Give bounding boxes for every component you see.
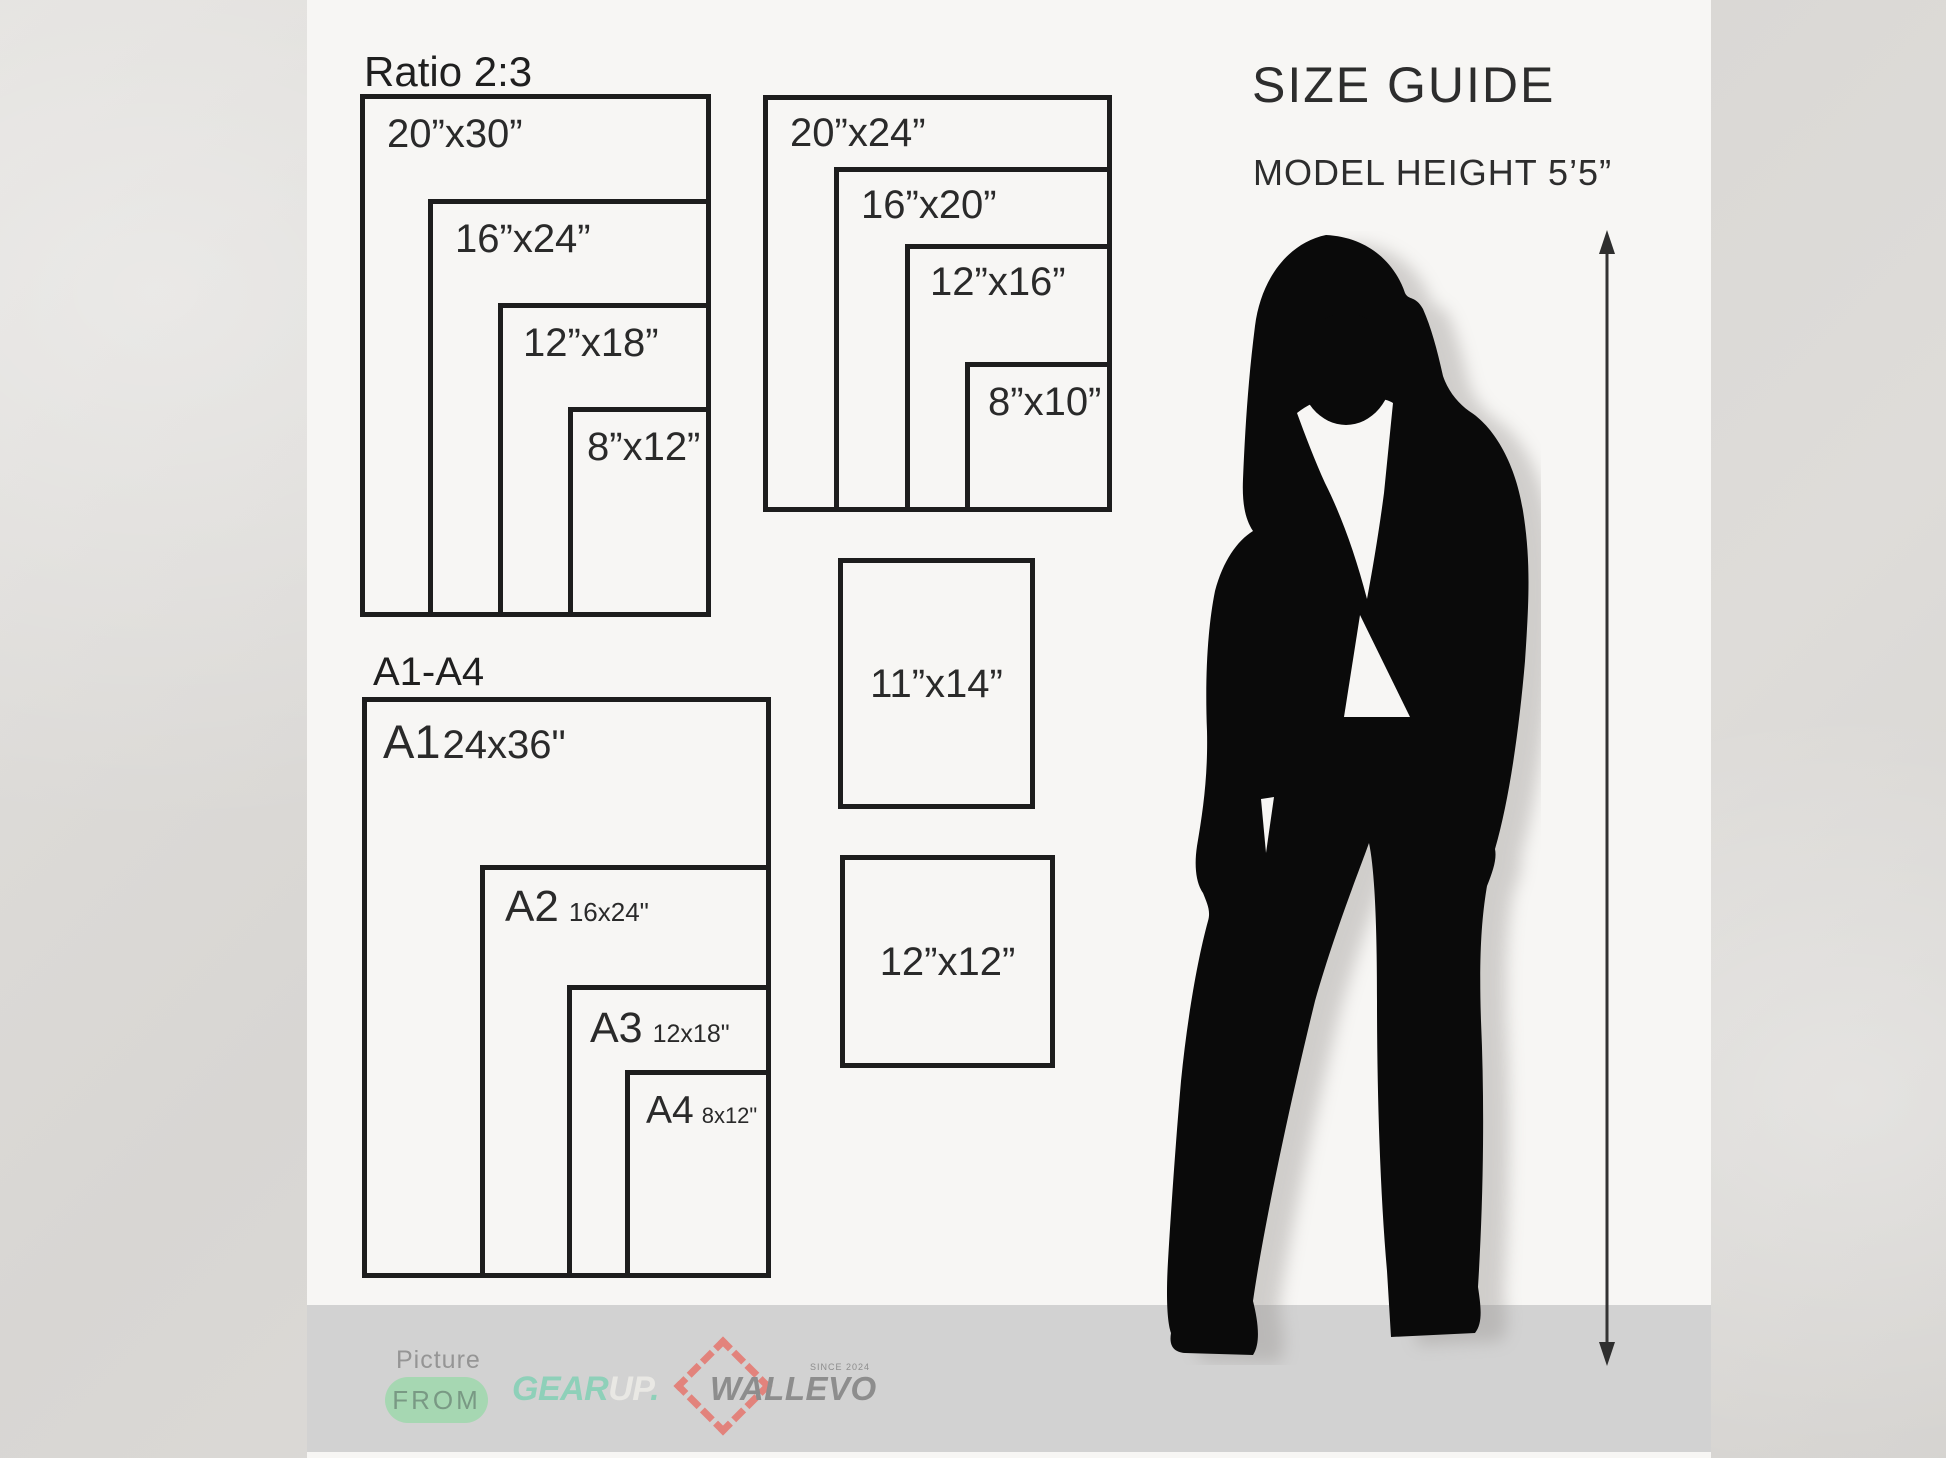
size-guide-infographic: Ratio 2:3 20”x30” 16”x24” 12”x18” 8”x12”… [0, 0, 1946, 1458]
size-label-12x16: 12”x16” [930, 261, 1066, 303]
size-box-11x14: 11”x14” [838, 558, 1035, 809]
a1-dim: 24x36" [443, 723, 566, 768]
size-label-16x20: 16”x20” [861, 184, 997, 226]
a3-label-row: A3 12x18" [590, 1004, 730, 1053]
a4-label-row: A4 8x12" [646, 1089, 757, 1133]
size-label-20x24: 20”x24” [790, 112, 926, 154]
gearup-logo-dot: . [650, 1370, 659, 1408]
ratio-2-3-group-label: Ratio 2:3 [364, 48, 532, 96]
gearup-logo: GEARUP. [512, 1370, 659, 1409]
size-label-8x10: 8”x10” [988, 381, 1101, 423]
size-label-12x18: 12”x18” [523, 322, 659, 364]
gearup-logo-up: UP [608, 1370, 650, 1408]
height-arrow-icon [1594, 230, 1620, 1366]
a3-name: A3 [590, 1004, 643, 1053]
size-label-16x24: 16”x24” [455, 218, 591, 260]
a1-label-row: A1 24x36" [383, 714, 566, 769]
size-box-12x12: 12”x12” [840, 855, 1055, 1068]
size-label-20x30: 20”x30” [387, 113, 523, 155]
wallevo-logo: WALLEVO [710, 1370, 877, 1408]
size-box-8x10: 8”x10” [965, 362, 1112, 512]
model-height-label: MODEL HEIGHT 5’5” [1253, 152, 1612, 194]
a4-name: A4 [646, 1089, 694, 1133]
a1-name: A1 [383, 714, 441, 769]
size-label-12x12: 12”x12” [880, 941, 1016, 983]
a2-name: A2 [505, 882, 559, 932]
picture-from-label: Picture [396, 1346, 481, 1375]
a2-label-row: A2 16x24" [505, 882, 649, 932]
model-silhouette-image [1163, 231, 1541, 1365]
size-box-8x12: 8”x12” [568, 407, 711, 617]
size-label-8x12: 8”x12” [587, 426, 700, 468]
from-badge: FROM [385, 1377, 488, 1423]
wallevo-since-label: SINCE 2024 [810, 1362, 870, 1372]
gearup-logo-gear: GEAR [512, 1370, 608, 1408]
page-title: SIZE GUIDE [1252, 56, 1555, 114]
size-label-11x14: 11”x14” [870, 663, 1003, 705]
from-badge-text: FROM [392, 1385, 481, 1416]
a4-dim: 8x12" [702, 1103, 758, 1129]
a-series-group-label: A1-A4 [373, 650, 484, 695]
a3-dim: 12x18" [653, 1020, 730, 1049]
size-box-a4: A4 8x12" [625, 1070, 771, 1278]
a2-dim: 16x24" [569, 897, 649, 928]
